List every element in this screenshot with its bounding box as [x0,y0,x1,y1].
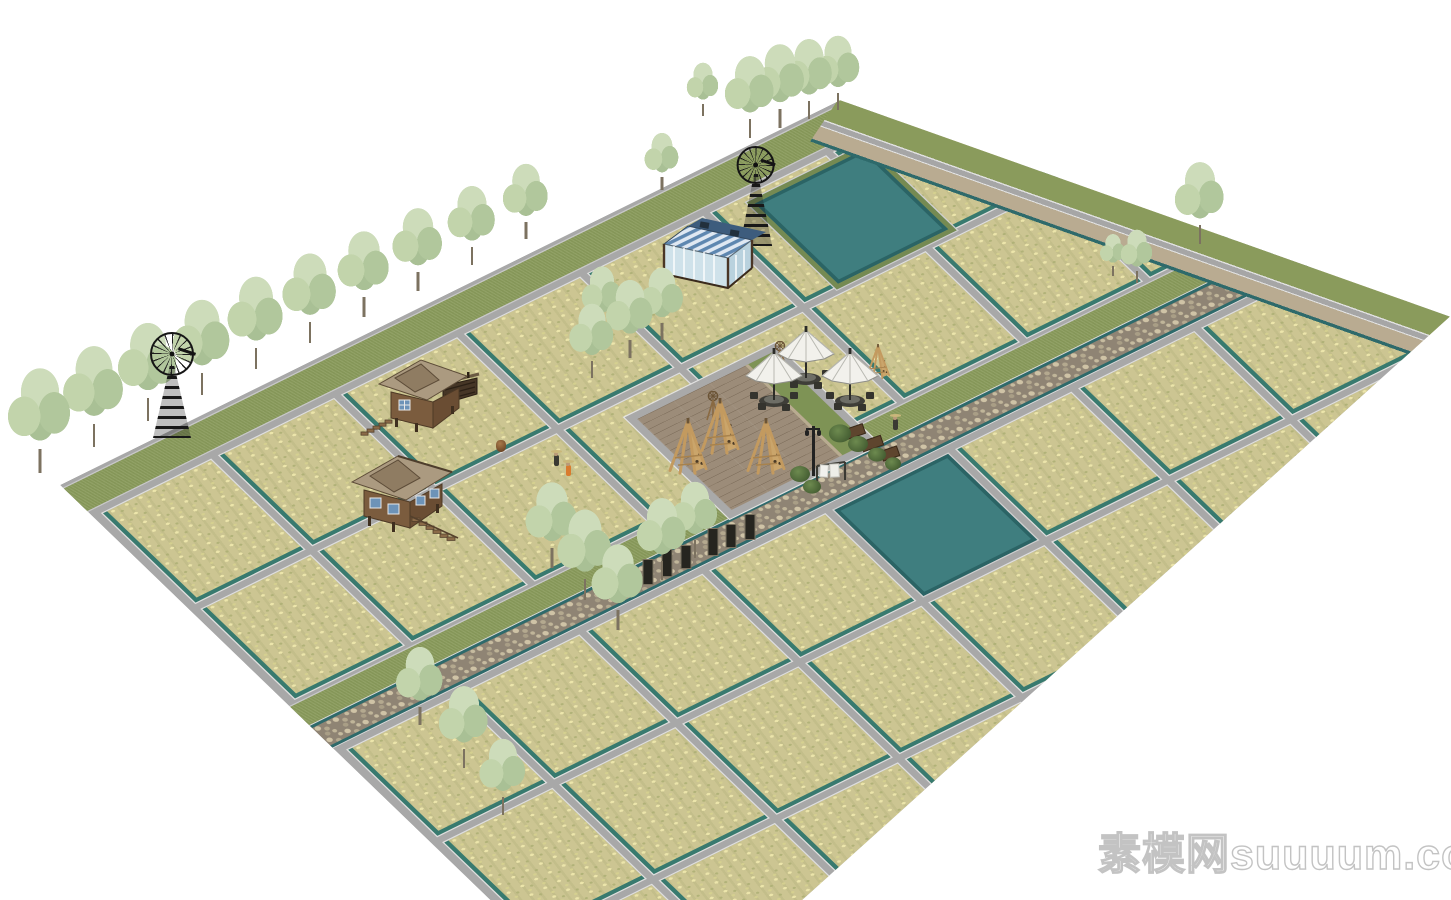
tree-canopy [1117,227,1157,271]
tree-canopy [391,643,450,707]
tree-trunk [584,579,587,600]
tree-trunk [419,707,422,725]
tree-canopy [641,130,684,177]
tree-canopy [1097,232,1129,266]
tree-canopy [276,249,344,322]
figure-part [563,460,574,463]
tree-canopy [442,182,502,247]
signboard [708,528,719,556]
tree-canopy [635,264,690,323]
tree [586,540,651,630]
tree [666,478,724,558]
tree-trunk [201,373,204,395]
tree [387,204,450,291]
laundry-rack [814,460,848,486]
lamp-part [817,430,821,436]
tree-trunk [417,272,420,291]
figure-part [551,450,562,453]
tree [635,264,690,340]
patio-umbrella-table [738,348,810,414]
windmill-hub [753,163,758,168]
tree [641,130,684,190]
windmill-rotor [737,146,775,184]
bush [868,448,886,462]
wooden-cabin [355,336,485,440]
tree [1097,232,1129,276]
tree [551,505,619,600]
tree-canopy [586,540,651,610]
signboard [681,545,692,569]
bush [885,457,901,470]
tree [810,32,866,110]
tree [1,363,80,473]
sprite-layer [0,0,1451,900]
tree [683,60,723,116]
tree-canopy [666,478,724,540]
teepee-trellis [863,344,893,380]
tree [1169,158,1231,244]
windmill [148,332,196,438]
tree-trunk [363,297,366,317]
tree-canopy [749,40,812,109]
tree-trunk [471,247,474,265]
planter-box [838,423,866,442]
tree [474,735,532,815]
tree-trunk [147,398,150,421]
tree [564,300,620,378]
tree-trunk [661,323,664,340]
tree-canopy [551,505,619,579]
tree-trunk [551,548,554,568]
signboard [726,524,737,548]
windmill [736,146,777,246]
windmill-hub [170,352,175,357]
lamp-post [805,422,821,476]
tree-canopy [564,300,620,361]
tree [276,249,344,343]
tree-trunk [525,222,528,239]
tree [166,295,238,395]
tree [498,160,555,239]
tree-canopy [779,35,839,101]
tree-canopy [683,60,723,104]
farm-3d-render: 素模网suuuum.com [0,0,1451,900]
tree [749,40,812,128]
watermark: 素模网suuuum.com [1098,820,1448,882]
lamp-part [806,428,820,430]
farmer-figure [550,449,562,466]
tree-canopy [1169,158,1231,225]
tree-canopy [810,32,866,93]
bush [790,466,810,482]
tree-canopy [631,494,693,561]
tree-canopy [474,735,532,797]
tree-trunk [661,177,664,190]
mini-windmill-decor [770,341,790,367]
tree-canopy [520,478,585,548]
tree [520,478,585,568]
figure-part [554,455,559,466]
signboard [662,549,673,577]
patio-umbrella-table [814,348,886,414]
bush [848,436,868,452]
tree-trunk [749,119,752,138]
tree-trunk [837,93,840,110]
tree-canopy [1,363,80,449]
tree-canopy [719,52,781,119]
signboard [745,514,756,540]
greenhouse [658,200,778,292]
tree-trunk [255,348,258,369]
tree-trunk [591,361,594,378]
tree-trunk [309,322,312,343]
tree [221,272,291,369]
tree [631,494,693,580]
tree-trunk [39,449,42,473]
tree [577,263,627,333]
tree-trunk [617,610,620,630]
mini-windmill-decor [703,391,723,421]
tree-canopy [387,204,450,272]
tree-trunk [694,540,697,558]
windmill-tail-vane [761,159,776,167]
lamp-part [812,426,815,476]
tree [1117,227,1157,283]
figure-part [554,452,558,456]
tree [433,682,495,768]
lamp-part [805,430,809,436]
bush [829,424,851,442]
signboard [643,559,654,585]
windmill-tail-vane [178,347,196,355]
tree-trunk [1136,271,1139,283]
clay-pot [496,440,506,452]
tree-trunk [93,424,96,447]
bush [803,480,821,494]
tree [391,643,450,725]
teepee-trellis [664,418,712,476]
tree-canopy [111,318,185,398]
figure-part [893,416,897,420]
tree-trunk [463,749,466,768]
tree [719,52,781,138]
figure-part [893,419,898,430]
figure-part [890,414,901,417]
figure-part [566,462,570,466]
planter-box [860,435,884,453]
tree [56,341,132,447]
farmer-figure [889,413,901,430]
tree-trunk [1199,225,1202,244]
tree [779,35,839,119]
tree-trunk [629,340,632,358]
tree-canopy [601,276,660,340]
tree [601,276,660,358]
tree-canopy [221,272,291,348]
tree-canopy [498,160,555,222]
tree [111,318,185,421]
teepee-trellis [696,398,744,456]
patio-umbrella-table [770,326,842,392]
tree-canopy [56,341,132,424]
tree-trunk [601,318,604,333]
figure-part [566,465,571,476]
tree-canopy [433,682,495,749]
tree-canopy [332,227,397,297]
windmill-tower [153,366,191,438]
tree-trunk [661,561,664,580]
tree [442,182,502,265]
tree-trunk [1112,266,1115,276]
tree-canopy [577,263,627,318]
tree-trunk [502,797,505,815]
farmer-figure [562,459,574,476]
tree-trunk [808,101,811,119]
planter-box [880,445,901,461]
tree-trunk [779,109,782,128]
teepee-trellis [742,418,790,476]
tree-trunk [702,104,705,116]
wooden-cabin-stilted [350,434,480,542]
windmill-tower [740,174,772,246]
tree-canopy [166,295,238,373]
windmill-rotor [150,332,194,376]
tree [332,227,397,317]
